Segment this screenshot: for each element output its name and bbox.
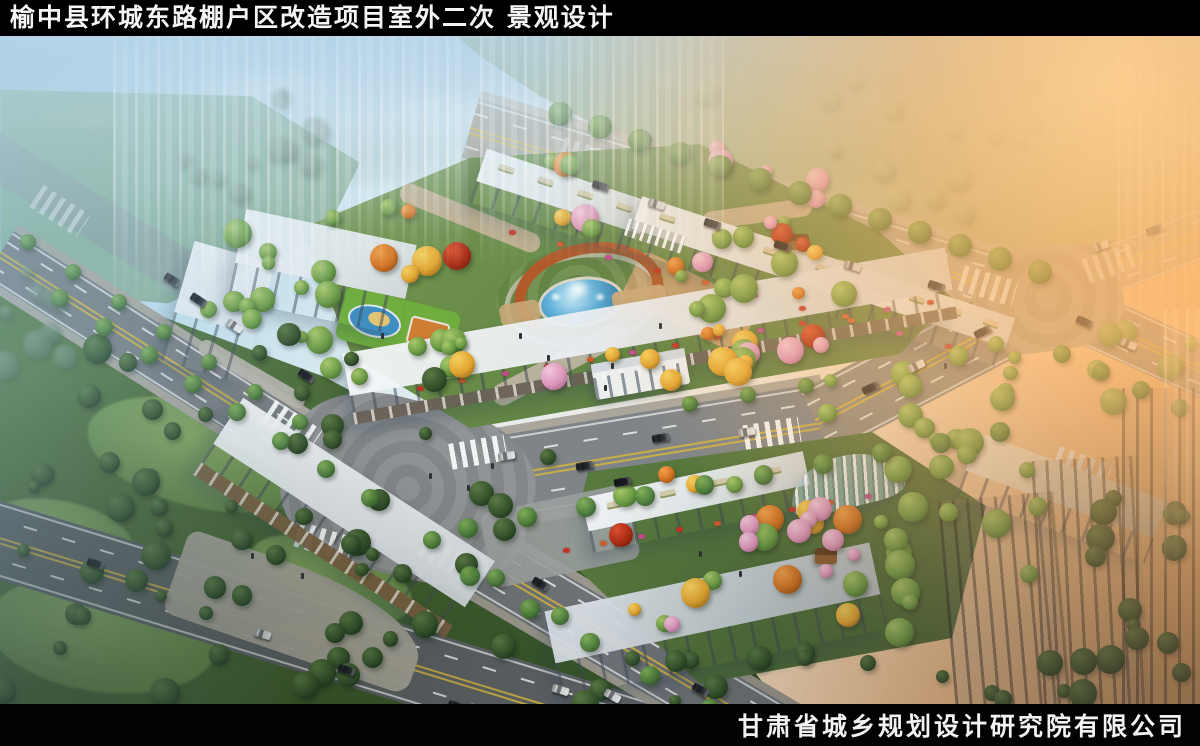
tree — [361, 489, 379, 507]
tree — [954, 203, 974, 223]
pedestrian — [251, 553, 254, 559]
tree — [551, 607, 569, 625]
tree — [419, 427, 432, 440]
tree — [813, 454, 833, 474]
flower-bed — [502, 371, 509, 376]
car-windshield — [978, 328, 985, 337]
tree — [487, 569, 505, 587]
flower-bed — [600, 541, 607, 546]
tree — [491, 634, 516, 659]
tree — [885, 550, 915, 580]
tree — [141, 541, 170, 570]
tree — [754, 465, 774, 485]
tree — [609, 523, 633, 547]
tree — [580, 633, 600, 653]
tree — [0, 677, 16, 704]
tree — [51, 289, 69, 307]
tree — [807, 245, 823, 261]
pedestrian — [519, 333, 522, 339]
pedestrian — [467, 485, 470, 491]
tree — [902, 594, 918, 610]
pedestrian — [611, 363, 614, 369]
flower-bed — [676, 527, 683, 532]
tree — [272, 432, 290, 450]
pedestrian — [699, 551, 702, 557]
tree — [946, 122, 962, 138]
tree — [292, 672, 319, 699]
tree — [520, 599, 540, 619]
tree — [847, 73, 863, 89]
fountain-jet — [550, 292, 562, 302]
pedestrian — [547, 355, 550, 361]
car-windshield — [932, 281, 938, 290]
tree — [990, 422, 1010, 442]
tree — [931, 433, 951, 453]
tree — [669, 695, 681, 704]
tree — [635, 486, 655, 506]
tree — [726, 476, 743, 493]
project-title: 榆中县环城东路棚户区改造项目室外二次 景观设计 — [0, 0, 615, 36]
pedestrian — [739, 571, 742, 577]
tree — [990, 387, 1015, 412]
tree — [231, 529, 252, 550]
flower-bed — [799, 306, 806, 311]
tree — [994, 690, 1012, 704]
tree — [325, 623, 345, 643]
tree — [323, 430, 342, 449]
flower-bed — [848, 318, 855, 323]
tree — [0, 306, 12, 319]
tree — [1008, 351, 1021, 364]
ghost-tower — [1164, 309, 1200, 579]
tree — [827, 143, 840, 156]
flower-bed — [563, 548, 570, 553]
tree — [252, 345, 268, 361]
ghost-tower — [480, 36, 724, 270]
tree — [946, 166, 971, 191]
tree — [23, 330, 52, 359]
tree — [888, 188, 910, 210]
ghost-tower — [336, 36, 468, 281]
flower-bed — [714, 521, 721, 526]
tree — [860, 655, 876, 671]
tree — [872, 443, 892, 463]
pedestrian — [429, 473, 432, 479]
tree — [936, 670, 950, 684]
tree — [949, 346, 969, 366]
flower-bed — [629, 350, 636, 355]
car-windshield — [91, 559, 97, 568]
car-windshield — [742, 428, 747, 436]
tree — [792, 287, 805, 300]
tree — [1012, 132, 1027, 147]
company-name: 甘肃省城乡规划设计研究院有限公司 — [738, 707, 1200, 743]
tree — [695, 475, 715, 495]
flower-bed — [896, 331, 903, 336]
tree — [939, 503, 959, 523]
car-windshield — [258, 629, 264, 638]
credit-bar: 甘肃省城乡规划设计研究院有限公司 — [0, 704, 1200, 746]
car-windshield — [229, 321, 236, 330]
tree — [724, 358, 752, 386]
tree — [132, 468, 160, 496]
tree — [1053, 345, 1071, 363]
tree — [198, 407, 213, 422]
tree — [460, 566, 480, 586]
pedestrian — [659, 323, 662, 329]
presentation-board: 榆中县环城东路棚户区改造项目室外二次 景观设计 甘肃省城乡规划设计研究院有限公司 — [0, 0, 1200, 746]
tree — [306, 326, 333, 353]
tree — [320, 357, 342, 379]
tree — [294, 384, 311, 401]
car-windshield — [866, 384, 873, 393]
tree — [150, 678, 180, 704]
car-windshield — [848, 261, 854, 270]
tree — [1003, 366, 1017, 380]
tree — [266, 545, 286, 565]
tree — [640, 666, 660, 686]
tree — [155, 519, 172, 536]
rendering-layers — [0, 36, 1200, 704]
flower-bed — [672, 343, 679, 348]
flower-bed — [417, 386, 424, 391]
flower-bed — [884, 307, 891, 312]
flower-bed — [865, 494, 872, 499]
tree — [640, 349, 660, 369]
tree — [366, 548, 379, 561]
tree — [797, 650, 813, 666]
tree — [317, 460, 335, 478]
tree — [689, 301, 705, 317]
flower-bed — [789, 507, 796, 512]
tree — [899, 375, 922, 398]
tree — [242, 309, 262, 329]
tree — [77, 384, 101, 408]
car-windshield — [695, 685, 702, 694]
car-windshield — [580, 462, 585, 470]
tree — [777, 337, 804, 364]
tree — [150, 498, 168, 516]
tree — [576, 497, 596, 517]
tree — [836, 603, 860, 627]
tree — [1019, 462, 1035, 478]
tree — [923, 186, 945, 208]
car-windshield — [607, 691, 614, 700]
tree — [1125, 627, 1149, 651]
pedestrian — [944, 363, 947, 369]
flower-bed — [587, 357, 594, 362]
flower-bed — [702, 280, 709, 285]
tree — [517, 507, 537, 527]
tree — [1157, 632, 1179, 654]
tree — [1132, 381, 1150, 399]
fountain-jet — [565, 278, 591, 300]
ghost-tower — [1117, 36, 1200, 356]
tree — [773, 565, 802, 594]
tree — [982, 509, 1011, 538]
tree — [872, 158, 895, 181]
tree — [184, 375, 202, 393]
tree — [422, 367, 447, 392]
fountain-jet — [594, 292, 606, 302]
tree — [225, 500, 238, 513]
flower-bed — [927, 300, 934, 305]
tree — [95, 318, 113, 336]
car-windshield — [556, 685, 562, 694]
tree — [458, 518, 478, 538]
tree — [847, 548, 860, 561]
tree — [819, 564, 833, 578]
tree — [344, 352, 359, 367]
tree — [295, 508, 313, 526]
car-windshield — [502, 452, 507, 460]
tree — [449, 351, 476, 378]
tree — [1028, 497, 1047, 516]
tree — [813, 337, 830, 354]
car-windshield — [342, 665, 348, 674]
tree — [204, 576, 227, 599]
tree — [1069, 679, 1098, 704]
tree — [929, 455, 953, 479]
tree — [53, 641, 67, 655]
tree — [28, 481, 41, 494]
tree — [541, 363, 568, 390]
tree — [1100, 388, 1127, 415]
tree — [106, 493, 135, 522]
tree — [988, 336, 1004, 352]
car-windshield — [1096, 242, 1102, 251]
tree — [1027, 117, 1040, 130]
pedestrian — [381, 333, 384, 339]
car — [297, 368, 316, 384]
pedestrian — [491, 463, 494, 469]
title-bar: 榆中县环城东路棚户区改造项目室外二次 景观设计 — [0, 0, 1200, 36]
tree — [1021, 71, 1043, 93]
tree — [228, 403, 246, 421]
tree — [771, 249, 799, 277]
aerial-rendering — [0, 36, 1200, 704]
car-windshield — [1080, 317, 1087, 326]
tree — [660, 369, 682, 391]
car-windshield — [535, 579, 542, 588]
tree — [665, 650, 687, 672]
tree — [20, 265, 34, 279]
car-windshield — [656, 434, 661, 442]
pedestrian — [604, 385, 607, 391]
tree — [764, 216, 777, 229]
tree — [125, 569, 148, 592]
flower-bed — [757, 328, 764, 333]
tree — [140, 346, 158, 364]
flower-bed — [945, 344, 952, 349]
tree — [730, 274, 759, 303]
tree — [819, 89, 840, 110]
tree — [73, 607, 91, 625]
tree — [957, 445, 977, 465]
flower-bed — [459, 378, 466, 383]
car-windshield — [618, 478, 623, 486]
tree — [1092, 363, 1110, 381]
tree — [1118, 598, 1142, 622]
tree — [423, 531, 441, 549]
tree — [99, 452, 120, 473]
tree — [119, 353, 138, 372]
car-windshield — [912, 362, 919, 371]
tree — [881, 98, 903, 120]
car-windshield — [778, 241, 784, 250]
tree — [493, 518, 516, 541]
tree — [277, 323, 301, 347]
pedestrian — [301, 573, 304, 579]
tree — [209, 644, 230, 665]
tree — [1096, 645, 1125, 674]
tree — [17, 544, 30, 557]
tree — [986, 123, 1006, 143]
tree — [355, 563, 369, 577]
ghost-tower — [113, 36, 331, 312]
tree — [885, 618, 914, 647]
car-windshield — [301, 371, 308, 380]
tree — [488, 493, 513, 518]
flower-bed — [638, 534, 645, 539]
